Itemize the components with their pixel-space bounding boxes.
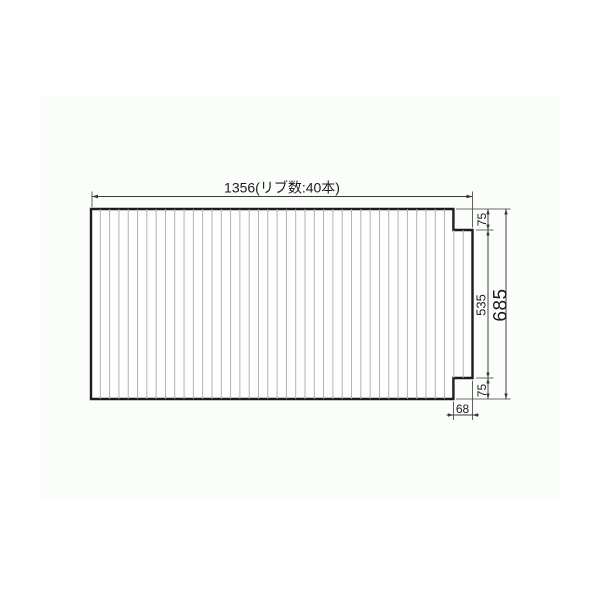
product-diagram-canvas: 1356(リブ数:40本) 75 535 685 75 68 bbox=[0, 0, 600, 600]
total-height-dimension-label: 685 bbox=[491, 288, 512, 321]
dimension-diagram: 1356(リブ数:40本) 75 535 685 75 68 bbox=[0, 0, 600, 600]
inner-height-dimension-label: 535 bbox=[474, 294, 489, 316]
lid-panel-outline bbox=[91, 209, 473, 399]
top-offset-dimension-label: 75 bbox=[475, 213, 489, 227]
notch-width-dimension-label: 68 bbox=[456, 402, 470, 416]
bottom-offset-dimension-label: 75 bbox=[475, 384, 489, 398]
width-dimension-label: 1356(リブ数:40本) bbox=[224, 179, 340, 195]
